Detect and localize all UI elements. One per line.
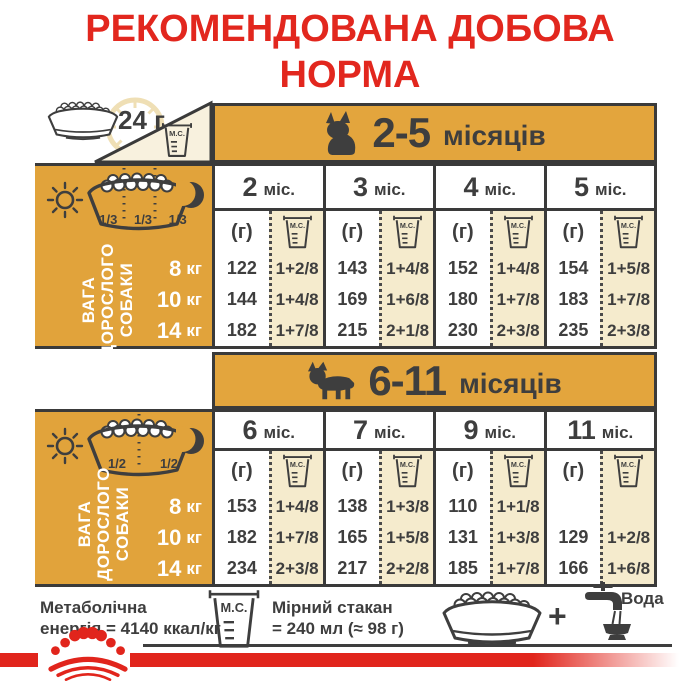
grams-value: 110: [436, 491, 490, 522]
cup-value: 1+4/8: [272, 491, 323, 522]
age-range-unit: місяців: [443, 120, 546, 152]
grams-header: (г): [326, 451, 380, 491]
measuring-cup-icon: М.С.: [614, 453, 643, 489]
portion-fraction: 1/3: [126, 212, 161, 227]
portion-panel-2: 1/2 1/2 ВАГА ДОРОСЛОГО СОБАКИ 8кг 10кг 1…: [35, 409, 212, 587]
weight-row-label: 8кг: [107, 491, 202, 522]
cups-subcolumn: М.С. 1+5/8 1+7/8 2+3/8: [600, 211, 654, 346]
measuring-cup-icon: М.С.: [614, 214, 643, 250]
age-range: 6-11: [368, 357, 446, 405]
grams-value: 230: [436, 315, 490, 346]
cup-value: 1+4/8: [272, 284, 323, 315]
mc-abbrev: М.С.: [220, 600, 247, 615]
svg-text:М.С.: М.С.: [290, 221, 305, 230]
portion-fraction: 1/3: [91, 212, 126, 227]
svg-text:М.С.: М.С.: [400, 460, 415, 469]
grams-value: 183: [547, 284, 601, 315]
grams-header: (г): [215, 211, 269, 253]
table-column: 3міс. (г) 143 169 215 М.С. 1+4/8 1+6/8 2…: [323, 166, 434, 346]
table-column: 2міс. (г) 122 144 182 М.С. 1+2/8 1+4/8 1…: [215, 166, 323, 346]
grams-value: [547, 491, 601, 522]
page-title-line1: РЕКОМЕНДОВАНА ДОБОВА: [0, 6, 700, 52]
cup-value: 1+7/8: [272, 522, 323, 553]
weight-row-label: 10кг: [107, 522, 202, 553]
grams-value: 185: [436, 553, 490, 584]
cup-value: 1+2/8: [603, 522, 654, 553]
age-group-2-header: 6-11 місяців: [212, 352, 657, 409]
cup-header: М.С.: [603, 451, 654, 491]
plus-sign: +: [548, 598, 567, 635]
weight-row-labels: 8кг 10кг 14кг: [107, 253, 202, 346]
measuring-cup-icon: М.С.: [162, 121, 192, 159]
portion-fractions: 1/3 1/3 1/3: [91, 212, 195, 227]
cup-value: 1+7/8: [272, 315, 323, 346]
cup-value: 1+4/8: [382, 253, 433, 284]
cup-value: 2+3/8: [603, 315, 654, 346]
grams-subcolumn: (г) 110 131 185: [436, 451, 490, 584]
column-header: 5міс.: [547, 166, 655, 211]
measuring-cup-note: Мірний стакан = 240 мл (≈ 98 г): [272, 597, 404, 639]
cups-subcolumn: М.С. 1+1/8 1+3/8 1+7/8: [490, 451, 544, 584]
grams-value: 138: [326, 491, 380, 522]
grams-value: 180: [436, 284, 490, 315]
measuring-cup-icon: М.С.: [283, 214, 312, 250]
cup-value: 1+6/8: [382, 284, 433, 315]
footer-divider: [143, 644, 672, 647]
table-column: 5міс. (г) 154 183 235 М.С. 1+5/8 1+7/8 2…: [544, 166, 655, 346]
grams-value: 143: [326, 253, 380, 284]
water-label: Вода: [621, 588, 664, 609]
grams-subcolumn: (г) 143 169 215: [326, 211, 380, 346]
grams-subcolumn: (г) 138 165 217: [326, 451, 380, 584]
brand-bar-left: [0, 653, 38, 667]
cups-subcolumn: М.С. 1+4/8 1+7/8 2+3/8: [490, 211, 544, 346]
table-column: 7міс. (г) 138 165 217 М.С. 1+3/8 1+5/8 2…: [323, 412, 434, 584]
column-header: 6міс.: [215, 412, 323, 451]
cup-header: М.С.: [493, 451, 544, 491]
grams-value: 182: [215, 522, 269, 553]
grams-value: 165: [326, 522, 380, 553]
measuring-cup-icon: М.С.: [283, 453, 312, 489]
cups-subcolumn: М.С. 1+3/8 1+5/8 2+2/8: [379, 451, 433, 584]
table-column: 4міс. (г) 152 180 230 М.С. 1+4/8 1+7/8 2…: [433, 166, 544, 346]
grams-value: 166: [547, 553, 601, 584]
table-column: 11міс. (г) 129 166 М.С. 1+2/8 1+6/8: [544, 412, 655, 584]
cup-header: М.С.: [272, 451, 323, 491]
cup-header: М.С.: [382, 451, 433, 491]
feeding-table-1: 2міс. (г) 122 144 182 М.С. 1+2/8 1+4/8 1…: [212, 163, 657, 349]
cup-header: М.С.: [382, 211, 433, 253]
feeding-table-2: 6міс. (г) 153 182 234 М.С. 1+4/8 1+7/8 2…: [212, 409, 657, 587]
measuring-cup-icon: М.С.: [504, 214, 533, 250]
cup-value: 2+1/8: [382, 315, 433, 346]
grams-subcolumn: (г) 153 182 234: [215, 451, 269, 584]
svg-text:М.С.: М.С.: [621, 221, 636, 230]
cup-value: 1+3/8: [493, 522, 544, 553]
mc-abbrev: М.С.: [169, 129, 185, 138]
grams-value: 215: [326, 315, 380, 346]
grams-value: 153: [215, 491, 269, 522]
cups-subcolumn: М.С. 1+4/8 1+6/8 2+1/8: [379, 211, 433, 346]
moon-icon: [176, 178, 206, 212]
brand-bar-right: [130, 653, 690, 667]
grams-value: 235: [547, 315, 601, 346]
page-title-line2: НОРМА: [0, 52, 700, 98]
weight-row-labels: 8кг 10кг 14кг: [107, 491, 202, 584]
grams-value: 169: [326, 284, 380, 315]
grams-value: 152: [436, 253, 490, 284]
table-column: 9міс. (г) 110 131 185 М.С. 1+1/8 1+3/8 1…: [433, 412, 544, 584]
cups-subcolumn: М.С. 1+2/8 1+6/8: [600, 451, 654, 584]
age-group-1-header: 2-5 місяців: [212, 103, 657, 163]
measuring-cup-icon: М.С.: [504, 453, 533, 489]
cup-header: М.С.: [603, 211, 654, 253]
cup-value: 1+5/8: [603, 253, 654, 284]
cup-value: 2+3/8: [493, 315, 544, 346]
cup-value: 1+6/8: [603, 553, 654, 584]
grams-header: (г): [436, 211, 490, 253]
sun-icon: [43, 178, 87, 222]
age-range-unit: місяців: [459, 368, 562, 400]
food-bowl-icon: [440, 591, 544, 647]
daily-amount-label: 24 г: [118, 105, 165, 136]
adult-dog-icon: [307, 361, 355, 401]
grams-value: 234: [215, 553, 269, 584]
cups-subcolumn: М.С. 1+2/8 1+4/8 1+7/8: [269, 211, 323, 346]
grams-subcolumn: (г) 152 180 230: [436, 211, 490, 346]
column-header: 7міс.: [326, 412, 434, 451]
puppy-dog-icon: [323, 111, 359, 155]
cup-value: [603, 491, 654, 522]
measuring-cup-icon: М.С.: [393, 214, 422, 250]
cup-value: 2+3/8: [272, 553, 323, 584]
grams-header: (г): [436, 451, 490, 491]
grams-value: 144: [215, 284, 269, 315]
column-header: 2міс.: [215, 166, 323, 211]
svg-text:М.С.: М.С.: [511, 460, 526, 469]
column-header: 9міс.: [436, 412, 544, 451]
cup-value: 1+7/8: [493, 284, 544, 315]
grams-value: 154: [547, 253, 601, 284]
grams-subcolumn: (г) 129 166: [547, 451, 601, 584]
portion-panel-1: 1/3 1/3 1/3 ВАГА ДОРОСЛОГО СОБАКИ 8кг 10…: [35, 163, 212, 349]
column-header: 4міс.: [436, 166, 544, 211]
portion-fraction: 1/2: [143, 456, 195, 471]
grams-header: (г): [547, 451, 601, 491]
grams-subcolumn: (г) 122 144 182: [215, 211, 269, 346]
feeding-guide-page: РЕКОМЕНДОВАНА ДОБОВА НОРМА 24 г: [0, 0, 700, 700]
weight-row-label: 14кг: [107, 553, 202, 584]
cup-value: 2+2/8: [382, 553, 433, 584]
cup-value: 1+1/8: [493, 491, 544, 522]
cup-value: 1+4/8: [493, 253, 544, 284]
food-bowl-icon: [46, 100, 120, 142]
sun-icon: [43, 424, 87, 468]
grams-value: 122: [215, 253, 269, 284]
grams-value: 182: [215, 315, 269, 346]
cup-value: 1+5/8: [382, 522, 433, 553]
cup-header: М.С.: [493, 211, 544, 253]
column-header: 11міс.: [547, 412, 655, 451]
measuring-cup-icon: М.С.: [207, 587, 261, 651]
svg-text:М.С.: М.С.: [621, 460, 636, 469]
grams-subcolumn: (г) 154 183 235: [547, 211, 601, 346]
grams-header: (г): [215, 451, 269, 491]
svg-text:М.С.: М.С.: [400, 221, 415, 230]
table-column: 6міс. (г) 153 182 234 М.С. 1+4/8 1+7/8 2…: [215, 412, 323, 584]
moon-icon: [176, 424, 206, 458]
weight-row-label: 8кг: [107, 253, 202, 284]
column-header: 3міс.: [326, 166, 434, 211]
grams-header: (г): [326, 211, 380, 253]
weight-row-label: 10кг: [107, 284, 202, 315]
cup-value: 1+2/8: [272, 253, 323, 284]
measuring-cup-icon: М.С.: [393, 453, 422, 489]
grams-value: 129: [547, 522, 601, 553]
page-title: РЕКОМЕНДОВАНА ДОБОВА НОРМА: [0, 6, 700, 98]
svg-text:М.С.: М.С.: [290, 460, 305, 469]
svg-text:М.С.: М.С.: [511, 221, 526, 230]
crown-logo: [44, 624, 132, 686]
cups-subcolumn: М.С. 1+4/8 1+7/8 2+3/8: [269, 451, 323, 584]
cup-value: 1+3/8: [382, 491, 433, 522]
grams-value: 131: [436, 522, 490, 553]
weight-row-label: 14кг: [107, 315, 202, 346]
portion-fraction: 1/3: [160, 212, 195, 227]
cup-value: 1+7/8: [603, 284, 654, 315]
cup-header: М.С.: [272, 211, 323, 253]
age-range: 2-5: [372, 109, 430, 157]
cup-value: 1+7/8: [493, 553, 544, 584]
grams-value: 217: [326, 553, 380, 584]
grams-header: (г): [547, 211, 601, 253]
